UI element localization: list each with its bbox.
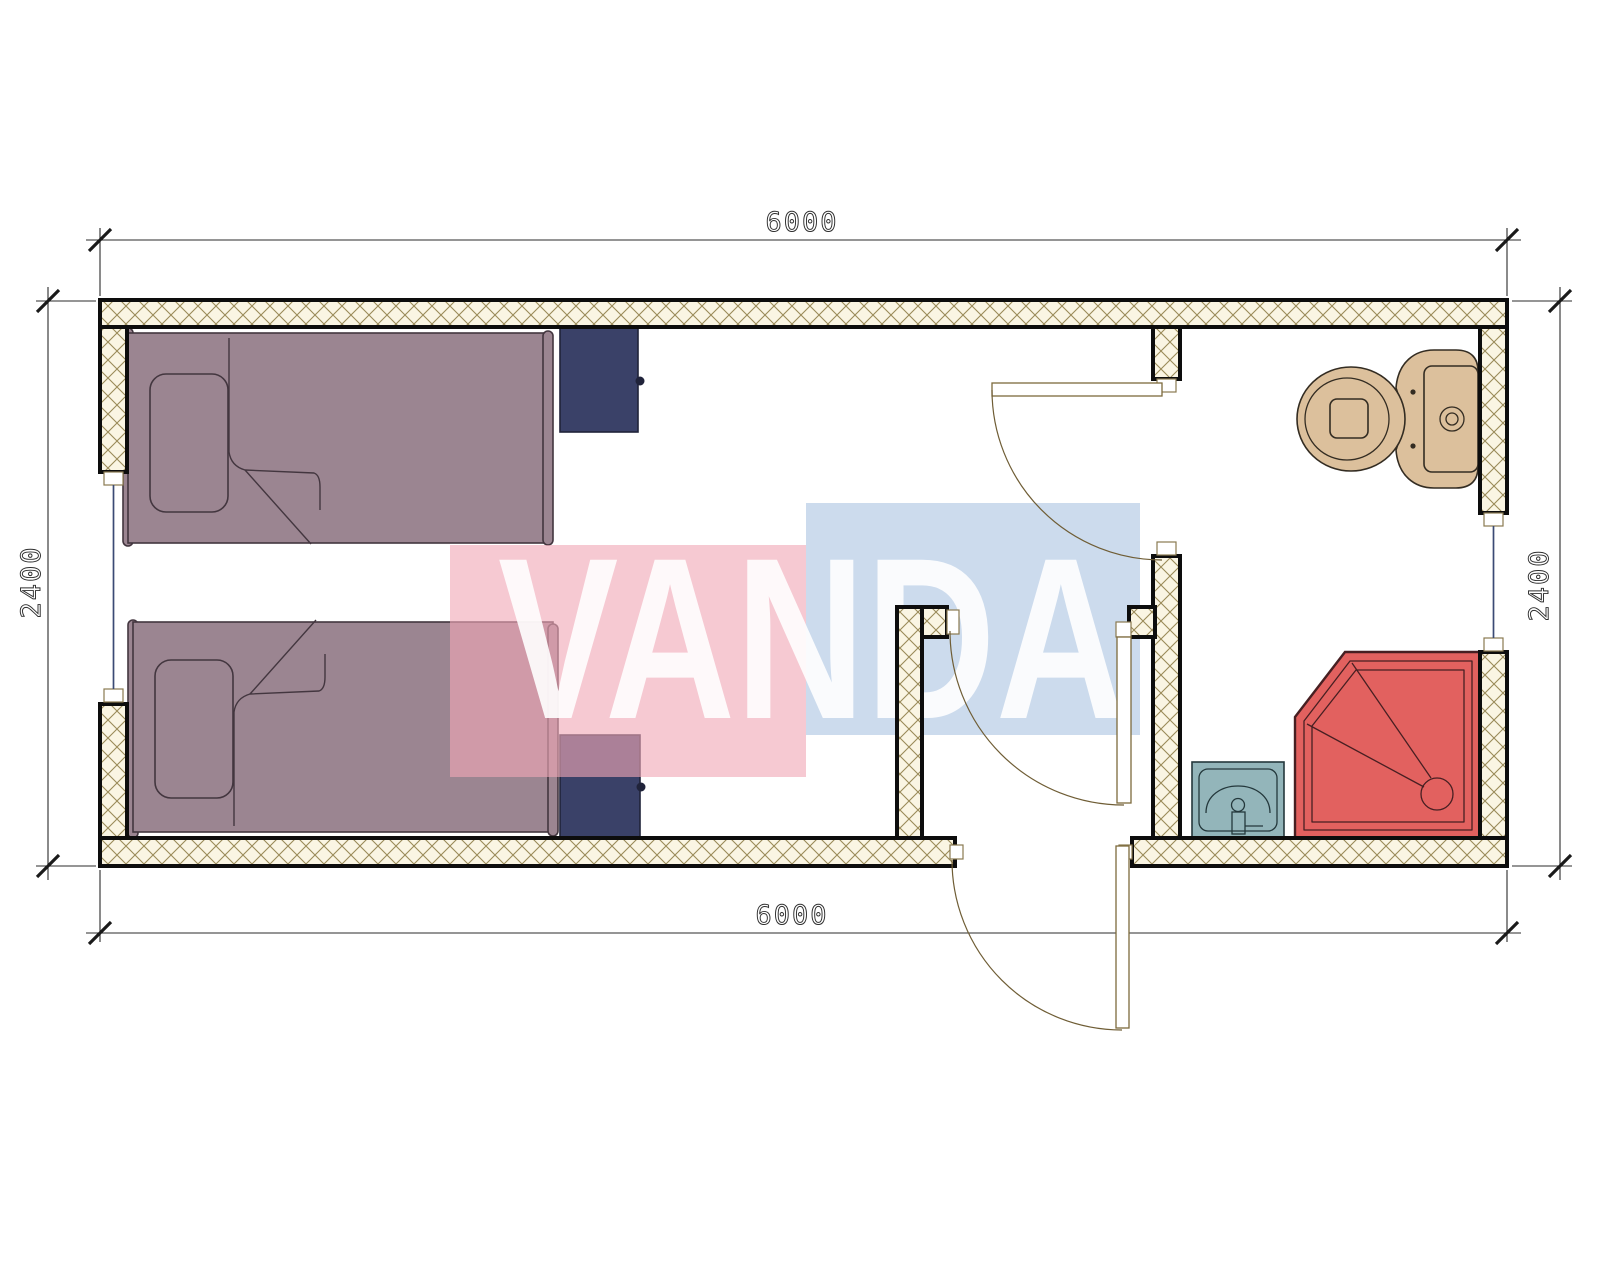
floor-plan-canvas: 6000 6000 2400 2400 [0,0,1600,1280]
toilet-bolt [1410,389,1415,394]
wall-hallway-partition [897,607,922,838]
dim-bottom-label: 6000 [755,900,828,931]
window-left-frame-cap [104,689,123,702]
shower-pan [1295,652,1481,839]
window-left-frame-cap [104,472,123,485]
dim-left-label: 2400 [16,545,47,618]
shower-tray [1295,652,1481,839]
bed-2-pillow [155,660,233,798]
sink [1192,762,1284,838]
bed-1-pillow [150,374,228,512]
bed-1 [123,328,553,546]
nightstand-1-body [560,328,638,432]
toilet-seat-detail [1330,399,1368,438]
dim-top-label: 6000 [765,207,838,238]
bathroom-door-leaf [992,383,1162,396]
floor-plan-page: 6000 6000 2400 2400 [0,0,1600,1280]
wall-bathroom-door-jamb [1129,607,1155,637]
wall-bottom-right [1132,838,1507,866]
toilet-bolt [1410,443,1415,448]
wall-hallway-door-jamb [922,607,947,637]
nightstand-1-knob [636,377,645,386]
wall-right-upper [1480,327,1507,513]
entry-door-leaf [1116,846,1129,1028]
wall-top [100,300,1507,327]
watermark: VANDA [450,503,1140,777]
wall-right-lower [1480,652,1507,838]
toilet-tank [1424,366,1478,472]
hallway-door-jamb-cap [947,610,959,634]
window-right-frame-cap [1484,513,1503,526]
nightstand-1 [560,328,645,432]
wall-left-upper [100,327,127,472]
hallway-door-hinge-cap [1116,622,1131,637]
wall-bathroom-partition [1153,556,1180,838]
entry-door-jamb-cap [950,845,963,859]
wall-left-lower [100,704,127,838]
watermark-text: VANDA [498,510,1126,767]
window-right-frame-cap [1484,638,1503,651]
sink-counter [1192,762,1284,838]
bathroom-door-jamb-cap [1157,542,1176,555]
hallway-door-leaf [1117,637,1131,803]
wall-bottom-left [100,838,955,866]
wall-bathroom-stub [1153,327,1180,379]
nightstand-2-knob [637,783,646,792]
dim-right-label: 2400 [1524,548,1555,621]
